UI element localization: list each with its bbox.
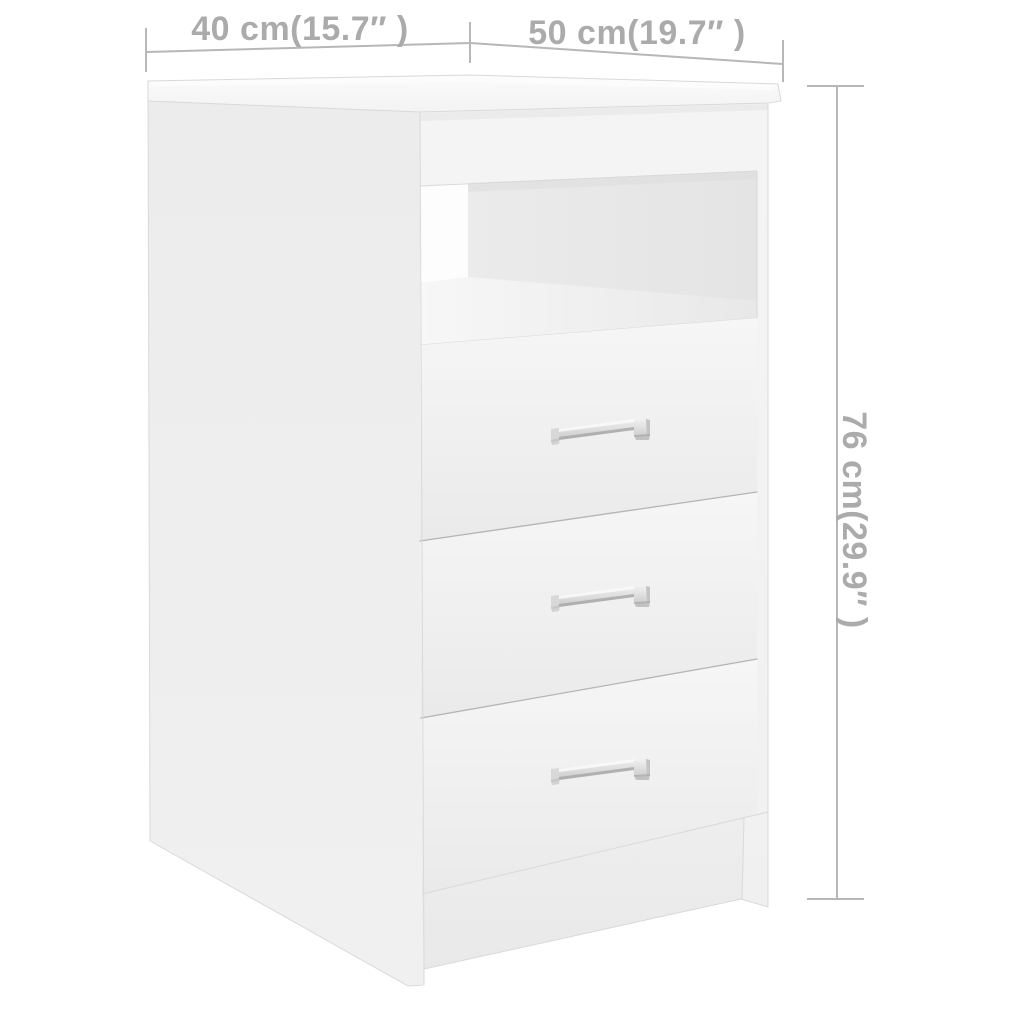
cabinet — [148, 75, 781, 986]
side-panel — [148, 101, 424, 986]
product-dimension-diagram: 40 cm(15.7″ ) 50 cm(19.7″ ) 76 cm(29.9″ … — [0, 0, 1024, 1024]
compartment-left-jamb — [420, 183, 468, 283]
height-dimension-label: 76 cm(29.9″ ) — [837, 411, 871, 628]
width-dimension-label: 50 cm(19.7″ ) — [482, 16, 792, 50]
right-foot — [742, 813, 768, 907]
depth-dimension-label: 40 cm(15.7″ ) — [150, 12, 450, 46]
open-compartment — [420, 171, 757, 345]
